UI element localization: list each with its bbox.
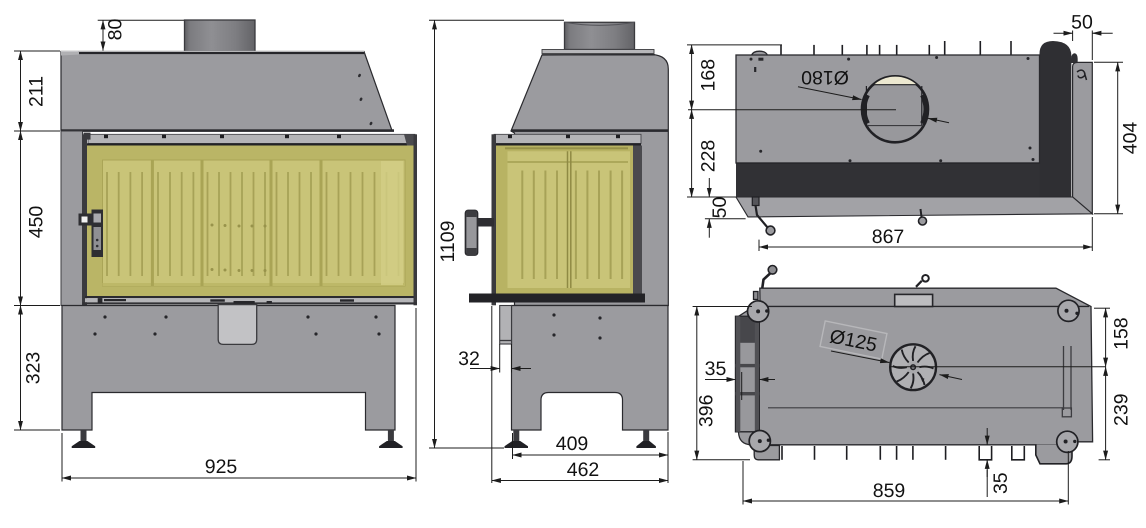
svg-text:32: 32 (458, 348, 480, 370)
svg-text:158: 158 (1111, 317, 1133, 350)
svg-text:Ø180: Ø180 (801, 66, 849, 88)
svg-text:859: 859 (873, 480, 906, 502)
svg-text:450: 450 (26, 206, 48, 239)
svg-text:462: 462 (567, 459, 600, 481)
svg-text:211: 211 (26, 76, 48, 107)
svg-text:239: 239 (1111, 393, 1133, 426)
svg-text:168: 168 (698, 59, 720, 92)
svg-text:228: 228 (698, 140, 720, 173)
svg-text:35: 35 (990, 472, 1012, 494)
svg-text:1109: 1109 (437, 221, 459, 263)
svg-text:409: 409 (556, 433, 589, 455)
svg-text:404: 404 (1120, 122, 1142, 155)
svg-text:50: 50 (709, 197, 731, 219)
svg-text:35: 35 (705, 358, 727, 380)
svg-text:80: 80 (105, 19, 127, 41)
svg-text:50: 50 (1071, 11, 1093, 33)
svg-text:396: 396 (696, 395, 718, 428)
svg-text:867: 867 (872, 226, 905, 248)
svg-text:323: 323 (23, 352, 45, 385)
svg-text:925: 925 (205, 456, 238, 478)
